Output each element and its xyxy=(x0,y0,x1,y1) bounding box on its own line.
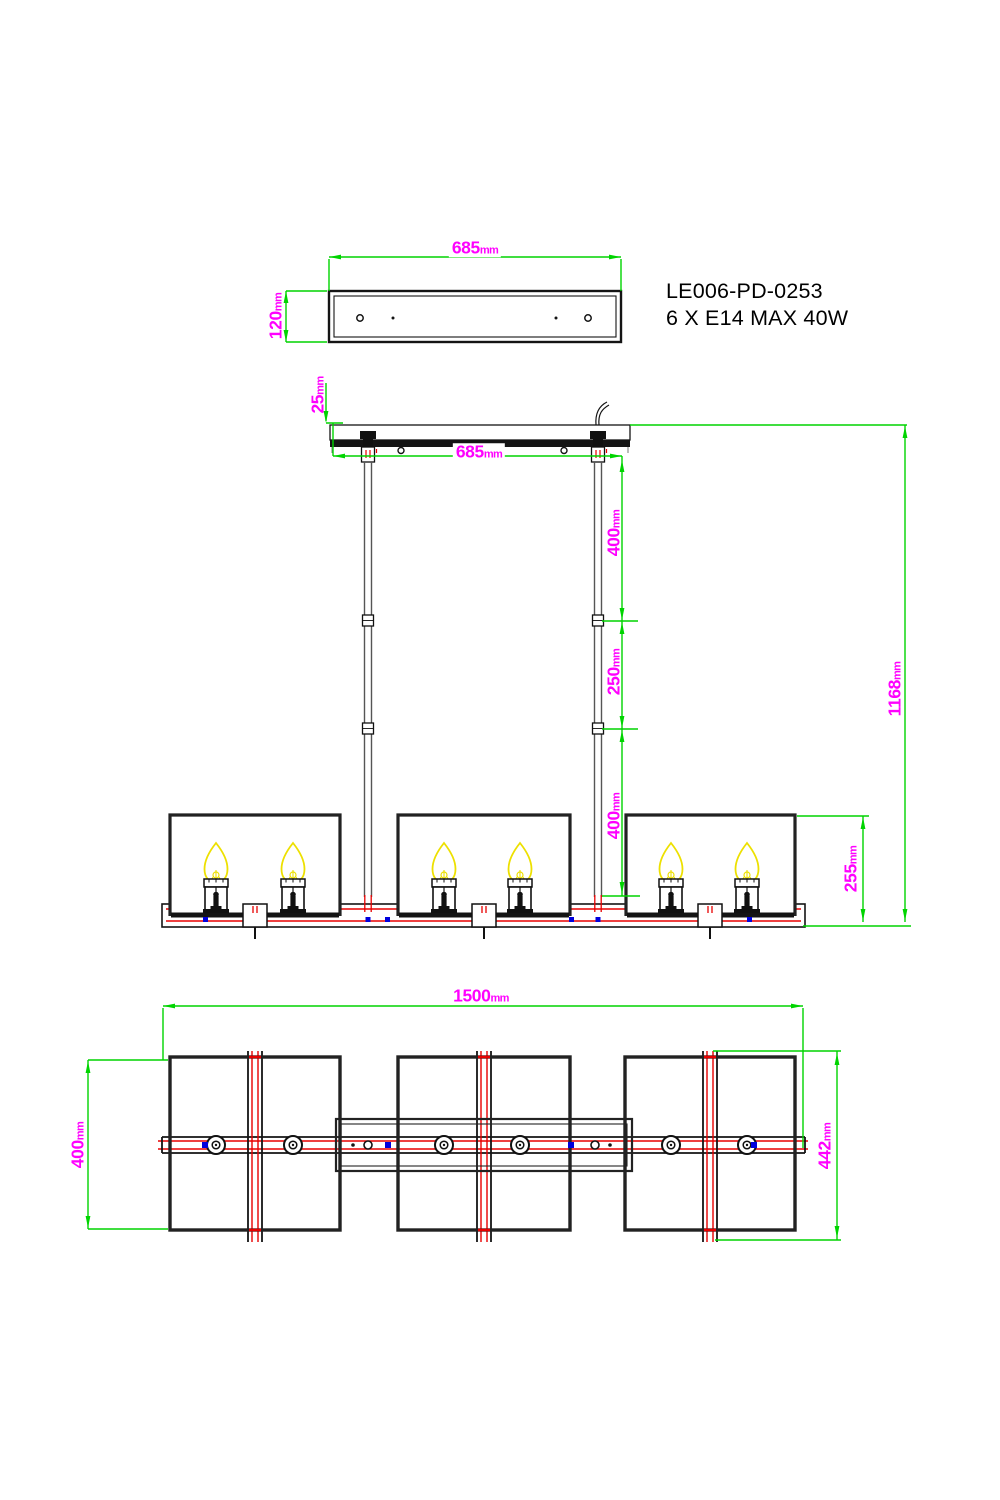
product-spec: 6 X E14 MAX 40W xyxy=(666,305,848,332)
plan-shade-center xyxy=(398,1057,570,1230)
plan-canopy-outline xyxy=(336,1119,632,1171)
dim-label-rod-segment-middle: 250mm xyxy=(605,649,623,695)
shade-center-elevation xyxy=(398,815,570,916)
shade-right-elevation xyxy=(626,815,795,916)
drawing-linework xyxy=(0,0,1000,1500)
power-wire xyxy=(596,402,609,425)
plan-rail xyxy=(158,1137,808,1153)
elevation-view xyxy=(162,383,911,939)
dim-label-rod-segment-top: 400mm xyxy=(605,510,623,556)
dim-label-rod-spacing: 685mm xyxy=(453,443,505,461)
top-view xyxy=(284,255,621,342)
dim-shade-width xyxy=(86,1060,168,1229)
mounting-dot xyxy=(392,317,395,320)
canopy-screw xyxy=(561,448,567,454)
dim-label-top-width: 685mm xyxy=(449,239,501,257)
canopy-screw xyxy=(398,448,404,454)
hanging-rod-left xyxy=(363,462,374,897)
dim-label-rod-segment-bottom: 400mm xyxy=(605,793,623,839)
plan-shade-left xyxy=(170,1057,340,1230)
rod-position-mark xyxy=(591,1141,599,1149)
dim-canopy-depth xyxy=(284,291,327,342)
mounting-dot xyxy=(555,317,558,320)
rod-position-mark xyxy=(364,1141,372,1149)
hanging-rod-right xyxy=(593,462,604,897)
canopy-plate-outer xyxy=(329,291,621,342)
shade-left-elevation xyxy=(170,815,340,916)
dim-label-overall-height: 1168mm xyxy=(886,662,904,717)
mounting-hole xyxy=(357,315,363,321)
dim-label-shade-height: 255mm xyxy=(842,846,860,892)
dim-canopy-width xyxy=(329,255,621,291)
plan-view xyxy=(86,1004,841,1242)
dim-label-canopy-thickness: 25mm xyxy=(309,376,327,413)
dim-label-top-height: 120mm xyxy=(267,293,285,339)
plan-shade-right xyxy=(625,1057,795,1230)
dim-label-overall-length: 1500mm xyxy=(453,987,509,1005)
product-info: LE006-PD-0253 6 X E14 MAX 40W xyxy=(666,278,848,332)
product-model: LE006-PD-0253 xyxy=(666,278,848,305)
dim-label-shade-width: 400mm xyxy=(69,1122,87,1168)
technical-drawing-canvas: LE006-PD-0253 6 X E14 MAX 40W 685mm 120m… xyxy=(0,0,1000,1500)
mounting-hole xyxy=(585,315,591,321)
dim-label-crossbar-length: 442mm xyxy=(816,1123,834,1169)
